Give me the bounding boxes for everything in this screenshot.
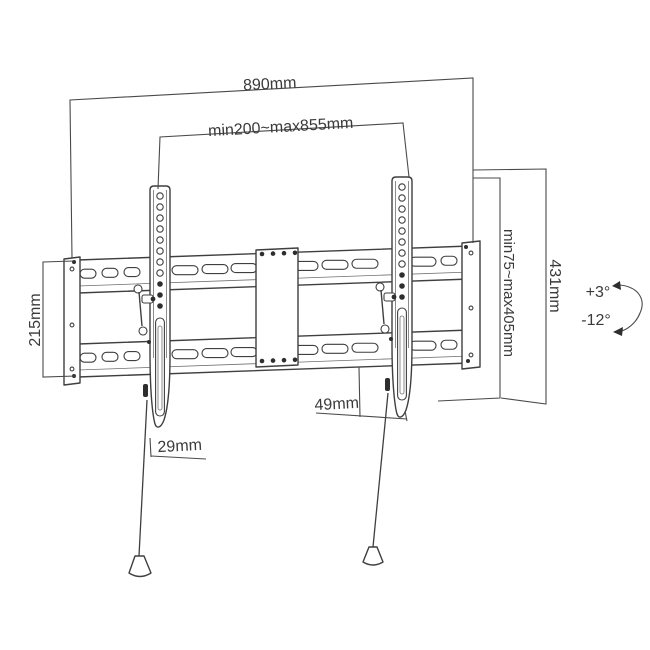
rail-slot xyxy=(231,348,257,357)
bracket-hole xyxy=(399,206,405,212)
rail-slot xyxy=(102,268,118,277)
bracket-bolt xyxy=(399,272,405,278)
bracket-hole xyxy=(157,226,163,232)
right-bracket-slot xyxy=(398,308,407,400)
rail-slot xyxy=(80,269,96,278)
bracket-bolt xyxy=(399,294,405,300)
rail-slot xyxy=(352,259,378,268)
bracket-hole xyxy=(399,250,405,256)
tilt-angle-annotation: +3° -12° xyxy=(581,281,642,336)
rail-slot xyxy=(322,344,348,353)
rivet-dot xyxy=(260,252,265,257)
rivet-dot xyxy=(271,251,276,256)
dim-plate-height-label: 215mm xyxy=(27,293,44,346)
rail-slot xyxy=(322,260,348,269)
rail-slot xyxy=(441,340,457,349)
dim-bracket-bottom-offset: 29mm xyxy=(150,437,206,459)
dim-bottom-depth-offset-label: 49mm xyxy=(314,395,359,414)
rivet-dot xyxy=(260,359,265,364)
rail-slot xyxy=(352,343,378,352)
bracket-hole xyxy=(399,228,405,234)
rivet-dot xyxy=(282,358,287,363)
bracket-bolt xyxy=(399,283,405,289)
bracket-hole xyxy=(399,261,405,267)
rail-slot xyxy=(124,352,140,361)
rail-slot xyxy=(172,266,198,275)
rail-slot xyxy=(124,268,140,277)
left-cord-pull-cone xyxy=(129,556,151,577)
center-plate xyxy=(256,248,298,367)
left-pull-cord xyxy=(129,400,151,577)
right-pull-cord xyxy=(363,393,388,565)
bracket-hole xyxy=(157,270,163,276)
bracket-hole xyxy=(157,259,163,265)
rail-slot xyxy=(410,257,436,266)
drawing-canvas: 890mm min200~max855mm 215mm min75~max405… xyxy=(0,0,650,650)
bracket-hole xyxy=(157,215,163,221)
bracket-hole xyxy=(157,237,163,243)
bracket-bolt xyxy=(157,281,163,287)
left-cord-clip xyxy=(143,384,148,397)
tilt-up-label: +3° xyxy=(586,284,611,301)
rivet-dot xyxy=(282,251,287,256)
bracket-hole xyxy=(157,248,163,254)
dim-bracket-height-label: 431mm xyxy=(546,259,563,312)
dim-mount-width-range: min200~max855mm xyxy=(158,115,409,189)
dim-mount-height-range-label: min75~max405mm xyxy=(500,229,517,357)
rivet-dot xyxy=(293,358,298,363)
left-tv-bracket xyxy=(134,186,170,427)
tilt-arc-arrow xyxy=(620,285,642,331)
rail-slot xyxy=(202,265,228,274)
bracket-hole xyxy=(399,195,405,201)
bracket-hole xyxy=(157,193,163,199)
rail-slot xyxy=(441,256,457,265)
rail-slot xyxy=(410,341,436,350)
dim-bracket-bottom-offset-label: 29mm xyxy=(157,437,202,456)
bracket-hole xyxy=(157,204,163,210)
left-end-cap xyxy=(64,257,80,385)
right-cord-pull-cone xyxy=(363,547,383,565)
right-end-cap xyxy=(462,241,480,369)
right-cord-clip xyxy=(385,378,390,391)
tilt-down-label: -12° xyxy=(581,312,611,329)
bracket-bolt xyxy=(157,292,163,298)
rail-slot xyxy=(202,349,228,358)
dim-mount-width-range-label: min200~max855mm xyxy=(208,115,354,140)
wall-mount-technical-drawing: 890mm min200~max855mm 215mm min75~max405… xyxy=(0,0,650,650)
left-bracket-slot xyxy=(156,318,165,416)
rail-slot xyxy=(102,352,118,361)
bracket-bolt xyxy=(157,303,163,309)
rail-slot xyxy=(231,264,257,273)
bracket-hole xyxy=(399,239,405,245)
bracket-hole xyxy=(399,217,405,223)
rail-slot xyxy=(80,353,96,362)
rivet-dot xyxy=(271,358,276,363)
rivet-dot xyxy=(293,251,298,256)
right-tv-bracket xyxy=(376,177,412,417)
bracket-hole xyxy=(399,184,405,190)
rail-slot xyxy=(172,350,198,359)
dim-bracket-height: 431mm xyxy=(473,169,563,404)
dim-overall-width-label: 890mm xyxy=(243,75,297,95)
